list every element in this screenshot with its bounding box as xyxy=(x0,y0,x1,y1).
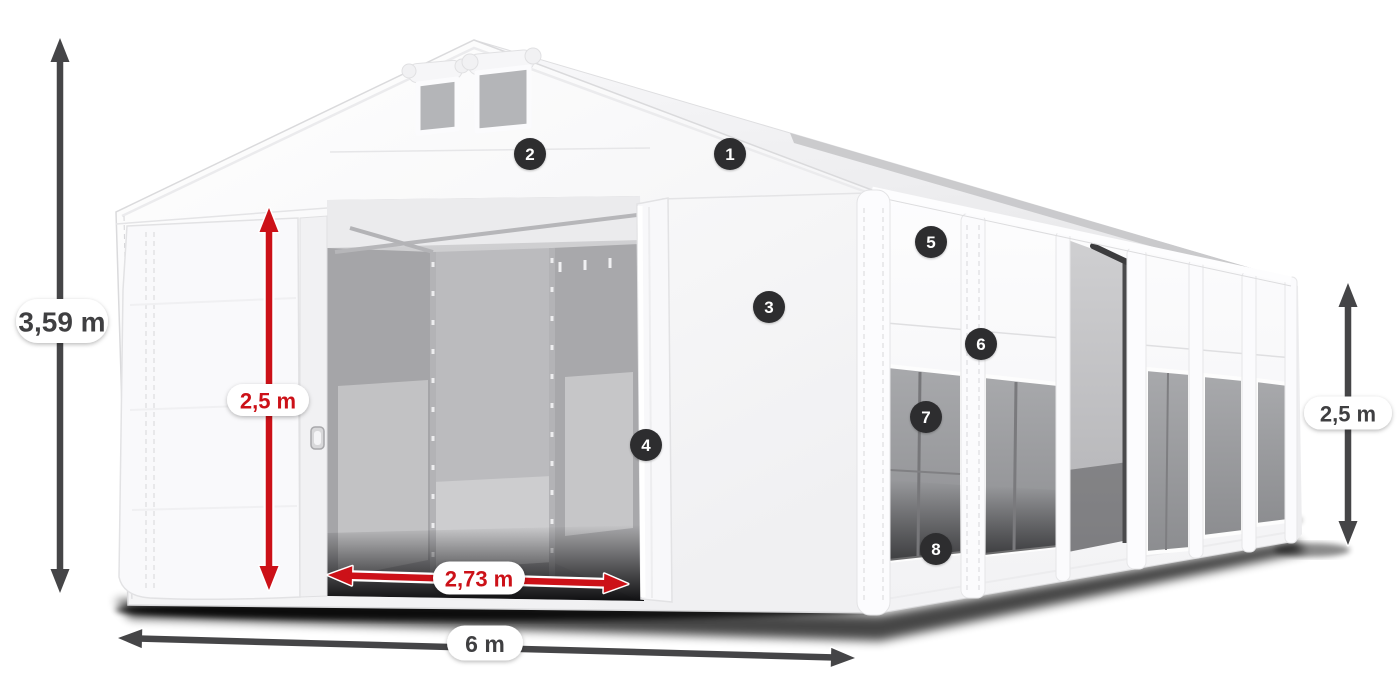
dimension-total-height: 3,59 m xyxy=(16,38,108,593)
feature-marker-7[interactable]: 7 xyxy=(910,401,942,433)
feature-marker-1[interactable]: 1 xyxy=(714,138,746,170)
dimension-label: 3,59 m xyxy=(18,307,105,338)
dimension-entrance-height: 2,5 m xyxy=(227,208,309,590)
dimension-total-width: 6 m xyxy=(118,626,855,667)
feature-marker-6[interactable]: 6 xyxy=(965,328,997,360)
feature-marker-2[interactable]: 2 xyxy=(514,138,546,170)
feature-marker-3[interactable]: 3 xyxy=(753,291,785,323)
feature-marker-8[interactable]: 8 xyxy=(920,533,952,565)
dimension-entrance-width: 2,73 m xyxy=(328,562,628,595)
feature-marker-4[interactable]: 4 xyxy=(630,429,662,461)
tent-dimension-diagram: 3,59 m2,5 m2,73 m6 m2,5 m 12345678 xyxy=(0,0,1400,700)
feature-marker-5[interactable]: 5 xyxy=(915,226,947,258)
dimension-label: 2,5 m xyxy=(1320,402,1376,427)
dimension-label: 2,5 m xyxy=(240,389,296,414)
dimension-label: 2,73 m xyxy=(445,567,514,592)
dimension-label: 6 m xyxy=(465,631,505,657)
dimension-side-height: 2,5 m xyxy=(1304,283,1392,545)
dimension-annotations: 3,59 m2,5 m2,73 m6 m2,5 m xyxy=(0,0,1400,700)
